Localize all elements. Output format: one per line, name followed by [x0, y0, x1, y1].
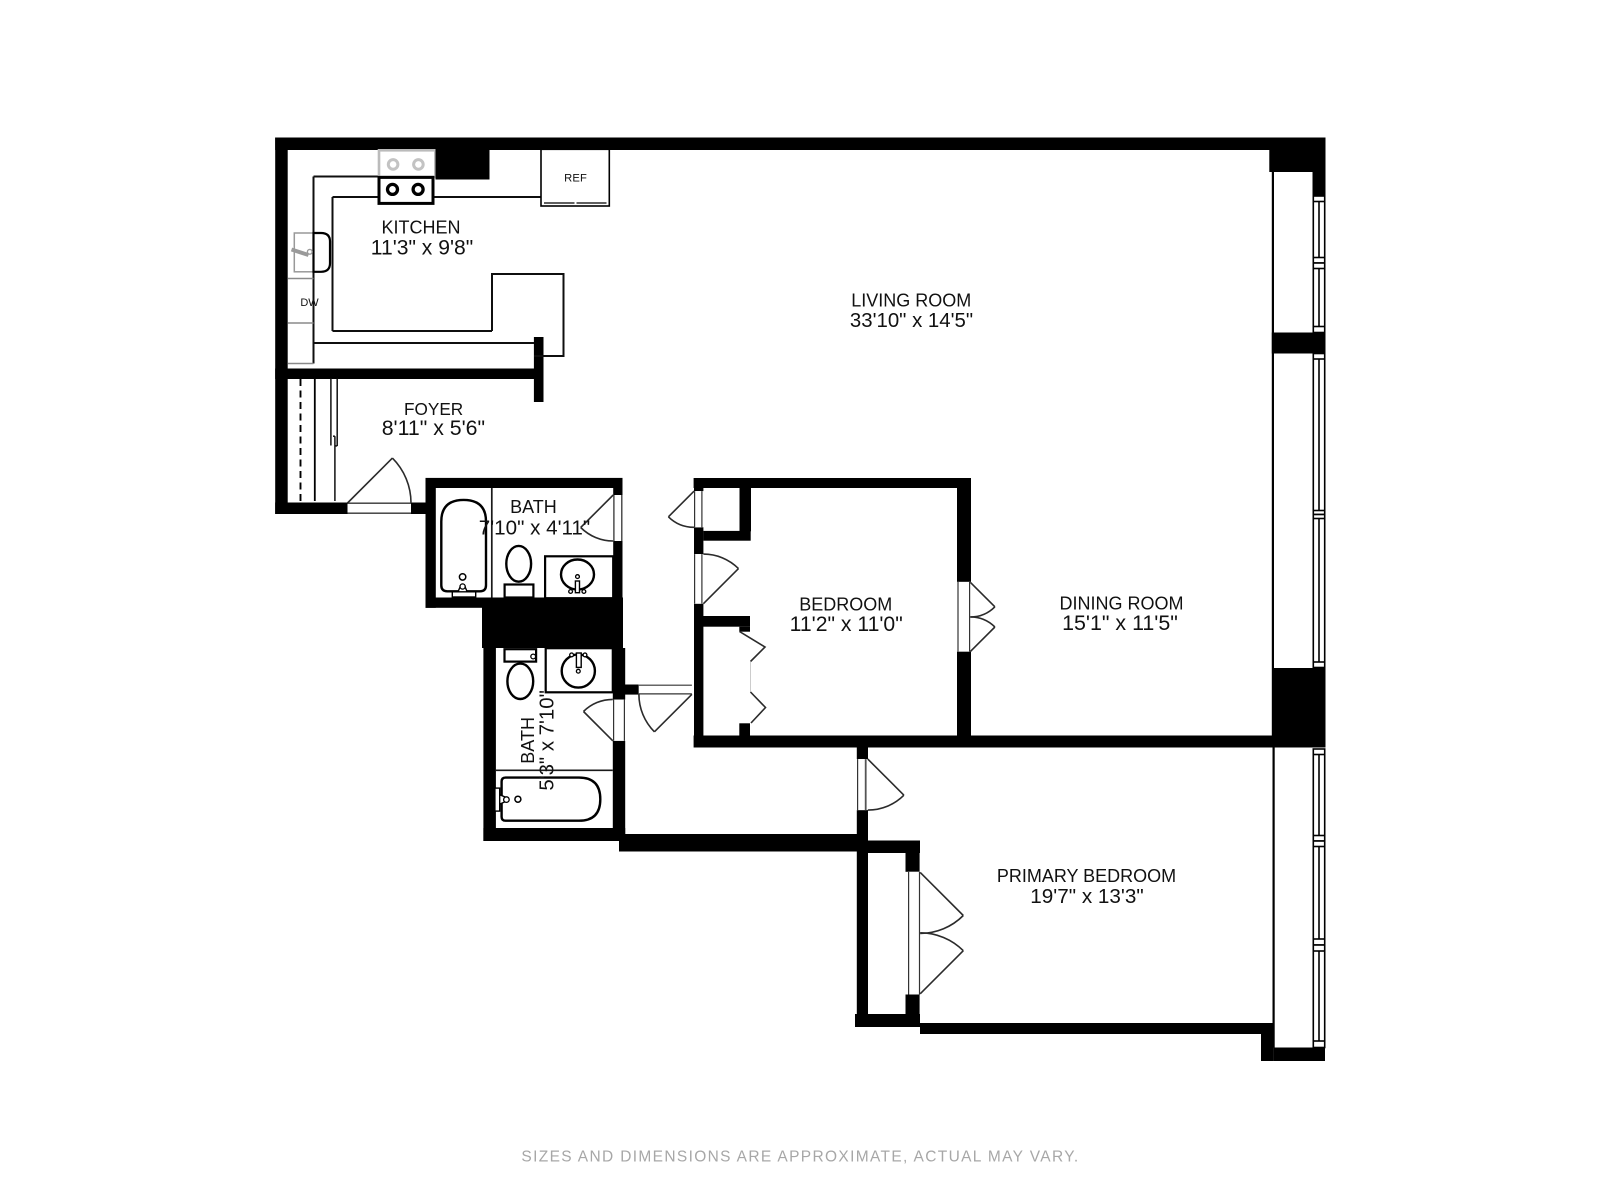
svg-text:19'7" x 13'3": 19'7" x 13'3": [1030, 885, 1143, 908]
svg-text:33'10" x 14'5": 33'10" x 14'5": [850, 310, 973, 332]
svg-text:BEDROOM: BEDROOM: [799, 595, 892, 615]
svg-text:REF: REF: [564, 173, 587, 185]
svg-text:PRIMARY BEDROOM: PRIMARY BEDROOM: [997, 866, 1176, 886]
svg-text:LIVING ROOM: LIVING ROOM: [851, 291, 971, 311]
svg-text:BATH: BATH: [510, 497, 557, 517]
svg-text:DW: DW: [300, 297, 319, 309]
svg-text:BATH: BATH: [518, 717, 538, 764]
svg-text:8'11" x 5'6": 8'11" x 5'6": [382, 416, 485, 440]
svg-text:SIZES AND DIMENSIONS ARE APPRO: SIZES AND DIMENSIONS ARE APPROXIMATE, AC…: [521, 1149, 1079, 1166]
svg-text:11'3" x 9'8": 11'3" x 9'8": [371, 237, 473, 260]
svg-text:11'2" x 11'0": 11'2" x 11'0": [790, 613, 903, 636]
svg-text:7'10" x 4'11": 7'10" x 4'11": [479, 516, 590, 539]
svg-text:5'3" x 7'10": 5'3" x 7'10": [537, 690, 559, 791]
svg-text:15'1" x 11'5": 15'1" x 11'5": [1062, 611, 1178, 635]
svg-text:KITCHEN: KITCHEN: [381, 218, 460, 238]
